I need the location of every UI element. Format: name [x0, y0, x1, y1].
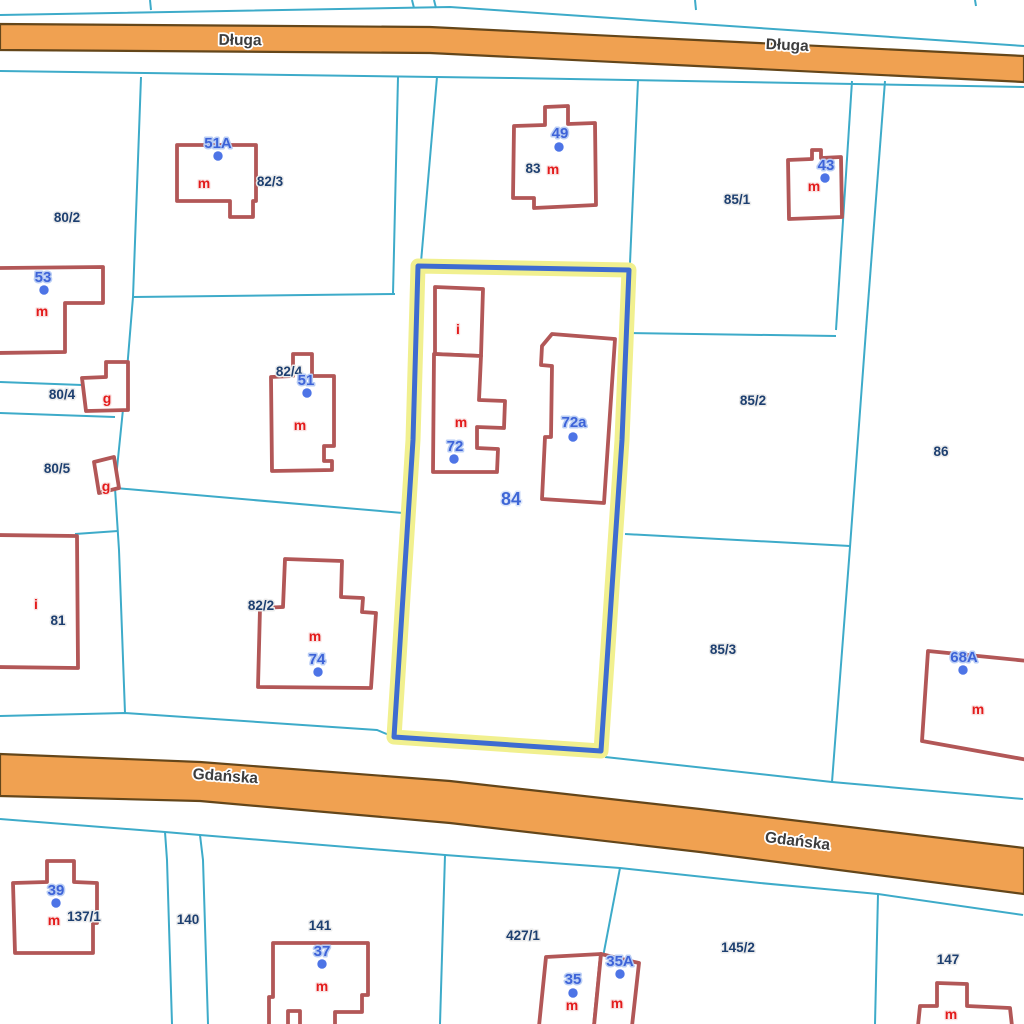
address-number-label: 49: [552, 125, 569, 142]
building-35[interactable]: [539, 954, 601, 1024]
address-number-label: 43: [818, 157, 835, 174]
address-number-label: 35A: [606, 953, 634, 970]
parcel-number-label: 85/3: [710, 642, 737, 657]
building-type-letter: i: [34, 596, 38, 612]
parcel-number-label: 86: [933, 444, 949, 459]
parcel-boundary-line: [695, 0, 696, 10]
map-canvas[interactable]: DługaDługaGdańskaGdańska80/282/38385/180…: [0, 0, 1024, 1024]
address-point[interactable]: [213, 151, 222, 160]
parcel-number-label: 83: [525, 161, 541, 176]
address-point[interactable]: [51, 898, 60, 907]
building-type-letter: m: [198, 175, 210, 191]
address-number-label: 72a: [561, 414, 587, 431]
address-point[interactable]: [958, 665, 967, 674]
address-point[interactable]: [554, 142, 563, 151]
building-type-letter: m: [611, 995, 623, 1011]
building-type-letter: g: [102, 478, 111, 494]
address-point[interactable]: [820, 173, 829, 182]
parcel-number-label: 80/4: [49, 387, 76, 402]
address-number-label: 53: [35, 269, 52, 286]
building-type-letter: m: [294, 417, 306, 433]
address-point[interactable]: [313, 667, 322, 676]
address-point[interactable]: [568, 988, 577, 997]
parcel-number-label: 137/1: [67, 909, 101, 924]
address-point[interactable]: [302, 388, 311, 397]
address-point[interactable]: [615, 969, 624, 978]
building-type-letter: m: [316, 978, 328, 994]
building-type-letter: i: [456, 321, 460, 337]
address-number-label: 39: [48, 882, 65, 899]
building-type-letter: m: [566, 997, 578, 1013]
parcel-number-label: 147: [937, 952, 960, 967]
parcel-boundary-line: [975, 0, 976, 6]
building-type-letter: m: [309, 628, 321, 644]
address-number-label: 74: [309, 651, 326, 668]
parcel-number-label: 145/2: [721, 940, 755, 955]
street-name-label: Długa: [765, 36, 809, 55]
parcel-number-label: 141: [309, 918, 332, 933]
parcel-number-label: 85/1: [724, 192, 751, 207]
address-point[interactable]: [568, 432, 577, 441]
address-number-label: 37: [314, 943, 331, 960]
parcel-number-label: 81: [50, 613, 66, 628]
parcel-number-label: 80/2: [54, 210, 80, 225]
address-number-label: 51A: [204, 135, 232, 152]
address-number-label: 51: [298, 372, 315, 389]
address-point[interactable]: [317, 959, 326, 968]
building-type-letter: m: [547, 161, 559, 177]
address-point[interactable]: [39, 285, 48, 294]
building-type-letter: m: [36, 303, 48, 319]
building-type-letter: m: [972, 701, 984, 717]
parcel-number-label: 140: [177, 912, 200, 927]
address-number-label: 72: [447, 438, 464, 455]
cadastral-map[interactable]: DługaDługaGdańskaGdańska80/282/38385/180…: [0, 0, 1024, 1024]
building-81[interactable]: [0, 535, 78, 668]
building-type-letter: m: [48, 912, 60, 928]
building-type-letter: m: [808, 178, 820, 194]
building-type-letter: g: [103, 390, 112, 406]
parcel-number-label: 427/1: [506, 928, 540, 943]
parcel-number-label: 82/2: [248, 598, 274, 613]
building-type-letter: m: [945, 1006, 957, 1022]
parcel-number-label: 85/2: [740, 393, 766, 408]
address-point[interactable]: [449, 454, 458, 463]
selected-parcel-number-label: 84: [501, 489, 521, 509]
street-name-label: Długa: [218, 32, 262, 50]
parcel-boundary-line: [150, 0, 151, 10]
parcel-number-label: 82/3: [257, 174, 284, 189]
address-number-label: 35: [565, 971, 582, 988]
building-type-letter: m: [455, 414, 467, 430]
parcel-number-label: 80/5: [44, 461, 71, 476]
address-number-label: 68A: [950, 649, 978, 666]
